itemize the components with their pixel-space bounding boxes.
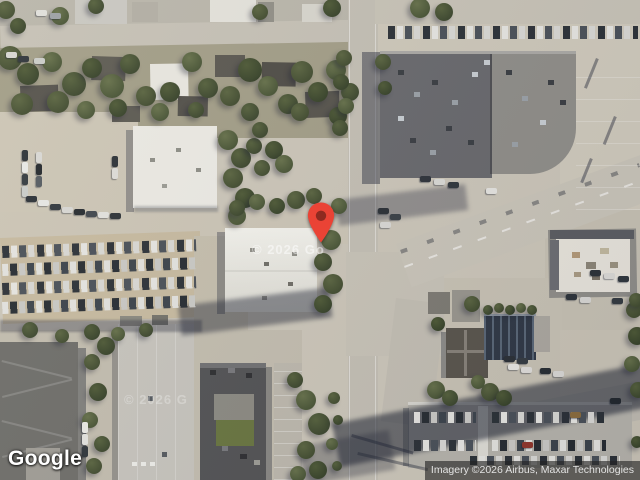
tree [223,168,243,188]
curb-line [349,0,350,480]
tree [11,93,33,115]
roof-texture [118,324,194,480]
rooftop-unit [548,80,554,85]
car [22,150,28,161]
car [390,214,401,220]
rooftop-unit [472,72,478,77]
tree [309,461,327,479]
tree [22,322,38,338]
tree [111,327,125,341]
courtyard-lawn [216,420,254,446]
tree [333,415,343,425]
rooftop-unit [560,100,566,105]
tree [471,375,485,389]
tree [218,130,238,150]
car [22,174,28,185]
tree [86,458,102,474]
tree [326,438,338,450]
rooftop-unit [506,70,512,75]
rooftop-unit [540,120,546,125]
tree [252,4,268,20]
car [420,176,431,182]
building-roof [132,2,158,22]
tree [290,466,306,480]
building-roof [534,316,550,352]
parking-stripes [132,462,158,466]
car-row [492,412,606,423]
tree [375,54,391,70]
car [486,188,497,194]
rooftop-unit [246,373,252,378]
rooftop-unit [150,158,155,162]
building-roof [428,292,450,314]
car [580,297,591,303]
building-edge [490,54,492,174]
car [82,434,88,445]
car [74,209,85,215]
rooftop-unit [512,142,518,147]
car [50,204,61,210]
tree [89,383,107,401]
car [22,162,28,173]
car [82,446,88,457]
tree [338,98,354,114]
tree [100,74,124,98]
tree [97,337,115,355]
tree [249,194,265,210]
house-roof [446,328,488,378]
car-row [388,26,638,39]
tree [483,305,493,315]
tree [238,58,262,82]
tree [17,63,39,85]
car [38,200,49,206]
building-edge [225,270,317,272]
tree [328,392,340,404]
pin-body [308,203,334,243]
rooftop-unit [292,252,297,256]
rooftop-unit [398,116,404,121]
tree [435,3,453,21]
tree [269,198,285,214]
tree [297,441,315,459]
tree [378,81,392,95]
tree [308,82,328,102]
imagery-attribution: Imagery ©2026 Airbus, Maxar Technologies [425,461,640,480]
car [112,156,118,167]
tree [296,390,316,410]
rooftop-unit [446,126,452,131]
map-canvas[interactable]: © 2026 Go © 2026 G Google Imagery ©2026 … [0,0,640,480]
tree [516,303,526,313]
tree [314,295,332,313]
tree [62,72,86,96]
shadow [362,52,380,184]
car [86,211,97,217]
tree [136,86,156,106]
tree [332,120,348,136]
tree [182,52,202,72]
building-edge [550,240,559,290]
tree [629,293,640,307]
car [378,208,389,214]
rooftop-unit [452,100,458,105]
tree [464,296,480,312]
tree [10,18,26,34]
car [36,164,42,175]
rubble [610,262,618,268]
tree [527,305,537,315]
tree [333,74,349,90]
tree [109,99,127,117]
roof-ridge [464,330,467,376]
car [380,222,391,228]
car [604,273,615,279]
tree [442,390,458,406]
tree [505,305,515,315]
roof-ridge [447,350,487,353]
tree [323,274,343,294]
rubble [574,272,581,277]
car [82,422,88,433]
tree [160,82,180,102]
tree [494,303,504,313]
tree [308,413,330,435]
rooftop-unit [288,282,293,286]
shadow [134,206,218,212]
tree [188,102,204,118]
rooftop-unit [264,262,269,266]
rooftop-unit [430,150,436,155]
tree [84,324,100,340]
tree [291,61,313,83]
rooftop-unit [468,140,474,145]
rooftop-unit [162,452,167,457]
car-row [414,440,476,451]
tree [291,103,309,121]
rooftop-unit [148,396,153,401]
tree [42,52,62,72]
tree [624,356,640,372]
car [521,367,532,373]
building-edge [550,230,634,239]
rooftop-unit [398,70,404,75]
tree [94,436,110,452]
rooftop-unit [414,92,420,97]
tree [151,103,169,121]
google-logo[interactable]: Google [8,447,82,471]
rooftop-unit [410,138,416,143]
tree [252,122,268,138]
tree [628,327,640,345]
car-row [492,440,606,451]
tree [47,91,69,113]
car [610,398,621,404]
tree [254,160,270,176]
rooftop-unit [228,368,235,373]
building-edge [380,51,576,54]
rooftop-unit [432,80,438,85]
building-roof [210,0,256,22]
rooftop-unit [162,184,167,188]
tree [220,86,240,106]
car [566,294,577,300]
tree [198,78,218,98]
tree [82,58,102,78]
car [517,358,528,364]
car [618,276,629,282]
rooftop-unit [222,446,228,451]
car [18,56,29,62]
car [62,207,73,213]
rubble [572,252,580,258]
tree [241,103,259,121]
tree [630,382,640,398]
car [50,13,61,19]
car [508,364,519,370]
tree [287,372,303,388]
building-roof [133,126,217,208]
car [36,152,42,163]
tree [431,317,445,331]
car [540,368,551,374]
solar-panels [484,316,536,360]
car [36,176,42,187]
rooftop-unit [176,148,181,152]
car [612,298,623,304]
car [434,179,445,185]
car [504,356,515,362]
rooftop-unit [484,60,490,65]
pin-dot [316,211,326,221]
rooftop-unit [522,96,528,101]
tree [332,461,342,471]
shadow [266,367,272,480]
tree [258,76,278,96]
rooftop-unit [240,454,247,459]
car [98,212,109,218]
car [36,10,47,16]
car [6,52,17,58]
car [112,168,118,179]
courtyard [214,394,254,420]
rooftop-unit [250,248,255,252]
rubble [600,248,609,254]
car [553,371,564,377]
rooftop-unit [210,370,216,375]
tree [496,390,512,406]
car [34,58,45,64]
tree [631,436,640,448]
car [590,270,601,276]
tree [314,253,332,271]
car-row [414,412,476,423]
tree [287,191,305,209]
rubble [586,262,596,269]
car [26,196,37,202]
tree [139,323,153,337]
rooftop-unit [254,460,260,465]
tree [229,200,245,216]
tree [77,101,95,119]
car [522,442,533,448]
tree [275,155,293,173]
tree [120,54,140,74]
tree [336,50,352,66]
tree [246,138,262,154]
car [570,412,581,418]
tree [55,329,69,343]
building-roof [492,54,576,174]
tree [84,354,100,370]
rooftop-unit [196,168,201,172]
car [448,182,459,188]
location-pin-icon[interactable] [307,202,335,243]
car [110,213,121,219]
